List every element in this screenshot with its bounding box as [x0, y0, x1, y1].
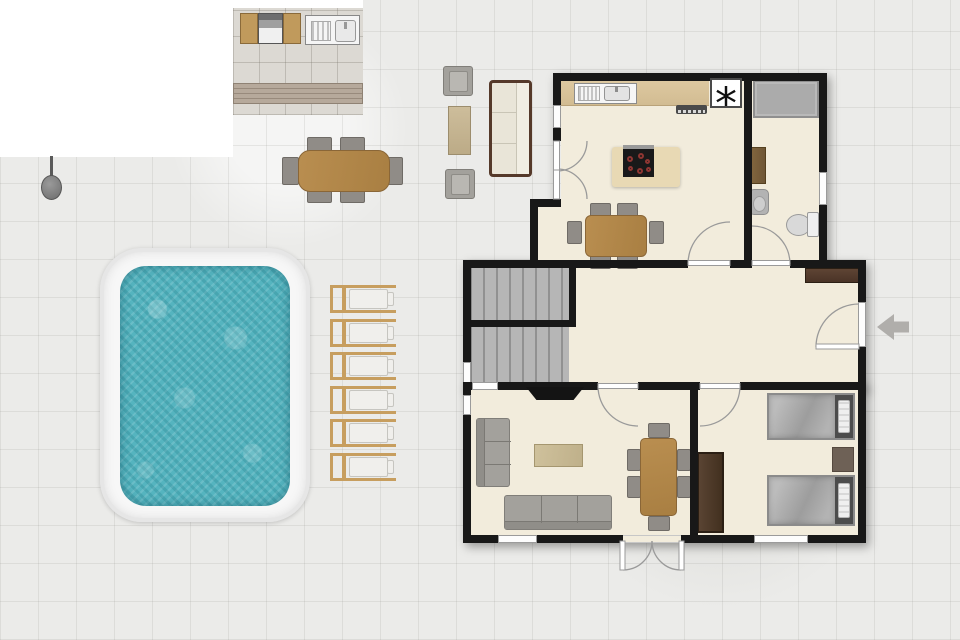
wall [530, 260, 688, 268]
sofa-backrest [505, 521, 611, 529]
single-bed[interactable] [767, 393, 855, 440]
wall [463, 535, 498, 543]
wall [690, 390, 698, 535]
kitchen-sink-unit[interactable] [574, 83, 637, 104]
bbq-grill[interactable] [240, 13, 301, 44]
lounger-pillow [387, 292, 394, 306]
sun-lounger[interactable] [330, 352, 396, 380]
dining-chair[interactable] [627, 476, 641, 498]
burner [645, 159, 650, 164]
lounger-frame-bar [342, 322, 346, 344]
faucet [615, 86, 618, 92]
basin-bowl [753, 196, 766, 212]
lounger-frame-bar [330, 389, 333, 411]
grill-body [258, 13, 283, 44]
lounger-frame-bar [330, 422, 333, 444]
patio-coffee-table[interactable] [448, 106, 471, 155]
sun-lounger[interactable] [330, 285, 396, 313]
fridge-symbol: * [715, 82, 737, 126]
lounger-cushion [349, 356, 388, 376]
lounger-cushion [349, 323, 388, 343]
wall [463, 382, 472, 390]
sofa-backrest [477, 419, 485, 486]
living-dining-table[interactable] [640, 438, 677, 516]
sofa-seam [577, 496, 578, 523]
lounger-cushion [349, 289, 388, 309]
washbasin[interactable] [749, 189, 769, 215]
bed-headboard [835, 477, 853, 524]
bed-pillow [838, 400, 850, 433]
wall [740, 382, 866, 390]
single-bed[interactable] [767, 475, 855, 526]
wall [530, 199, 561, 207]
sofa-seam [485, 441, 511, 442]
door-opening [598, 382, 638, 390]
door-opening [700, 382, 740, 390]
island-cooktop[interactable] [623, 149, 654, 177]
plot-boundary-white [0, 0, 233, 157]
sun-lounger[interactable] [330, 453, 396, 481]
bed-headboard [835, 395, 853, 438]
lounger-frame-bar [342, 355, 346, 377]
wall [808, 535, 866, 543]
bedroom-window [754, 535, 808, 543]
wardrobe[interactable] [697, 452, 724, 533]
hood-vents [678, 110, 705, 113]
lounger-frame-bar [330, 355, 333, 377]
living-side-window [463, 395, 471, 415]
lounger-frame-bar [330, 456, 333, 478]
wall [819, 205, 827, 268]
wood-deck[interactable] [233, 83, 363, 104]
fridge[interactable]: * [710, 78, 742, 108]
outdoor-armchair[interactable] [445, 169, 475, 199]
burner [646, 167, 651, 172]
grill-side-table-left [240, 13, 258, 44]
sofa-backrest [516, 83, 529, 174]
hallway-window [463, 362, 471, 383]
bed-blanket [769, 395, 835, 438]
hall-living-window [472, 382, 498, 390]
plot-boundary-white-strip [233, 0, 363, 8]
dining-chair[interactable] [677, 476, 691, 498]
toilet-tank [807, 212, 819, 237]
extractor-hood[interactable] [676, 105, 707, 114]
lounger-cushion [349, 423, 388, 443]
drainboard [578, 86, 600, 101]
wall [638, 382, 700, 390]
burner [637, 168, 643, 174]
lounger-pillow [387, 326, 394, 340]
dining-chair[interactable] [648, 423, 670, 438]
staircase-lower-flight[interactable] [471, 327, 569, 382]
outdoor-shower-head[interactable] [41, 175, 62, 200]
grill-side-table-right [283, 13, 301, 44]
lounger-cushion [349, 390, 388, 410]
sofa-bottom[interactable] [504, 495, 612, 530]
sun-lounger[interactable] [330, 419, 396, 447]
kitchen-window [553, 105, 561, 128]
burner [627, 156, 633, 162]
armchair-cushion [451, 174, 470, 195]
dining-floor [537, 199, 561, 260]
patio-door-sill [623, 535, 681, 543]
wall [858, 347, 866, 543]
wall [463, 260, 530, 268]
lounger-frame-bar [342, 456, 346, 478]
lounger-frame-bar [342, 389, 346, 411]
sofa-left[interactable] [476, 418, 510, 487]
swimming-pool[interactable] [120, 266, 290, 506]
door-opening [688, 260, 730, 268]
wall [744, 81, 752, 264]
wall [553, 128, 561, 141]
dining-chair[interactable] [648, 516, 670, 531]
lounger-pillow [387, 393, 394, 407]
bathroom-window [819, 172, 827, 205]
lounger-frame-bar [342, 422, 346, 444]
lounger-pillow [387, 426, 394, 440]
sofa-seam [541, 496, 542, 523]
drainboard [311, 21, 331, 41]
door-opening [752, 260, 790, 268]
wall [858, 260, 866, 302]
armchair-cushion [449, 71, 468, 92]
bed-blanket [769, 477, 835, 524]
dining-chair[interactable] [649, 221, 664, 244]
living-window [498, 535, 537, 543]
lounger-frame-bar [342, 288, 346, 310]
dining-chair[interactable] [567, 221, 582, 244]
dining-table[interactable] [585, 215, 647, 257]
lounger-frame-bar [330, 288, 333, 310]
lounger-cushion [349, 457, 388, 477]
dining-chair[interactable] [627, 449, 641, 471]
entry-door-sill [858, 302, 866, 347]
outdoor-sink-unit[interactable] [305, 15, 360, 45]
wall [681, 535, 754, 543]
sofa-seam [492, 143, 516, 144]
wall [553, 81, 561, 105]
stair-side-wall [569, 268, 576, 327]
outdoor-dining-table[interactable] [298, 150, 390, 192]
bed-pillow [838, 483, 850, 518]
coffee-table[interactable] [534, 444, 583, 467]
outdoor-armchair[interactable] [443, 66, 473, 96]
wall [790, 260, 866, 268]
lounger-frame-bar [330, 322, 333, 344]
burner [638, 153, 644, 159]
stair-divider-wall [463, 320, 570, 327]
wall [819, 81, 827, 172]
patio-chair[interactable] [282, 157, 299, 185]
wall [537, 535, 623, 543]
outdoor-sofa[interactable] [489, 80, 532, 177]
shower-tray[interactable] [753, 80, 819, 118]
burner [628, 166, 633, 171]
sun-lounger[interactable] [330, 386, 396, 414]
dining-chair[interactable] [677, 449, 691, 471]
floor-plan: * [0, 0, 960, 640]
wall [463, 415, 471, 535]
nightstand[interactable] [832, 447, 854, 472]
wall [553, 73, 827, 81]
faucet [344, 22, 347, 29]
sofa-seam [485, 464, 511, 465]
wall [530, 207, 538, 268]
console-sideboard[interactable] [805, 268, 861, 283]
sun-lounger[interactable] [330, 319, 396, 347]
wall [730, 260, 752, 268]
lounger-pillow [387, 460, 394, 474]
sofa-seam [492, 112, 516, 113]
lounger-pillow [387, 359, 394, 373]
wall [463, 268, 471, 362]
staircase-upper-flight[interactable] [471, 268, 569, 320]
